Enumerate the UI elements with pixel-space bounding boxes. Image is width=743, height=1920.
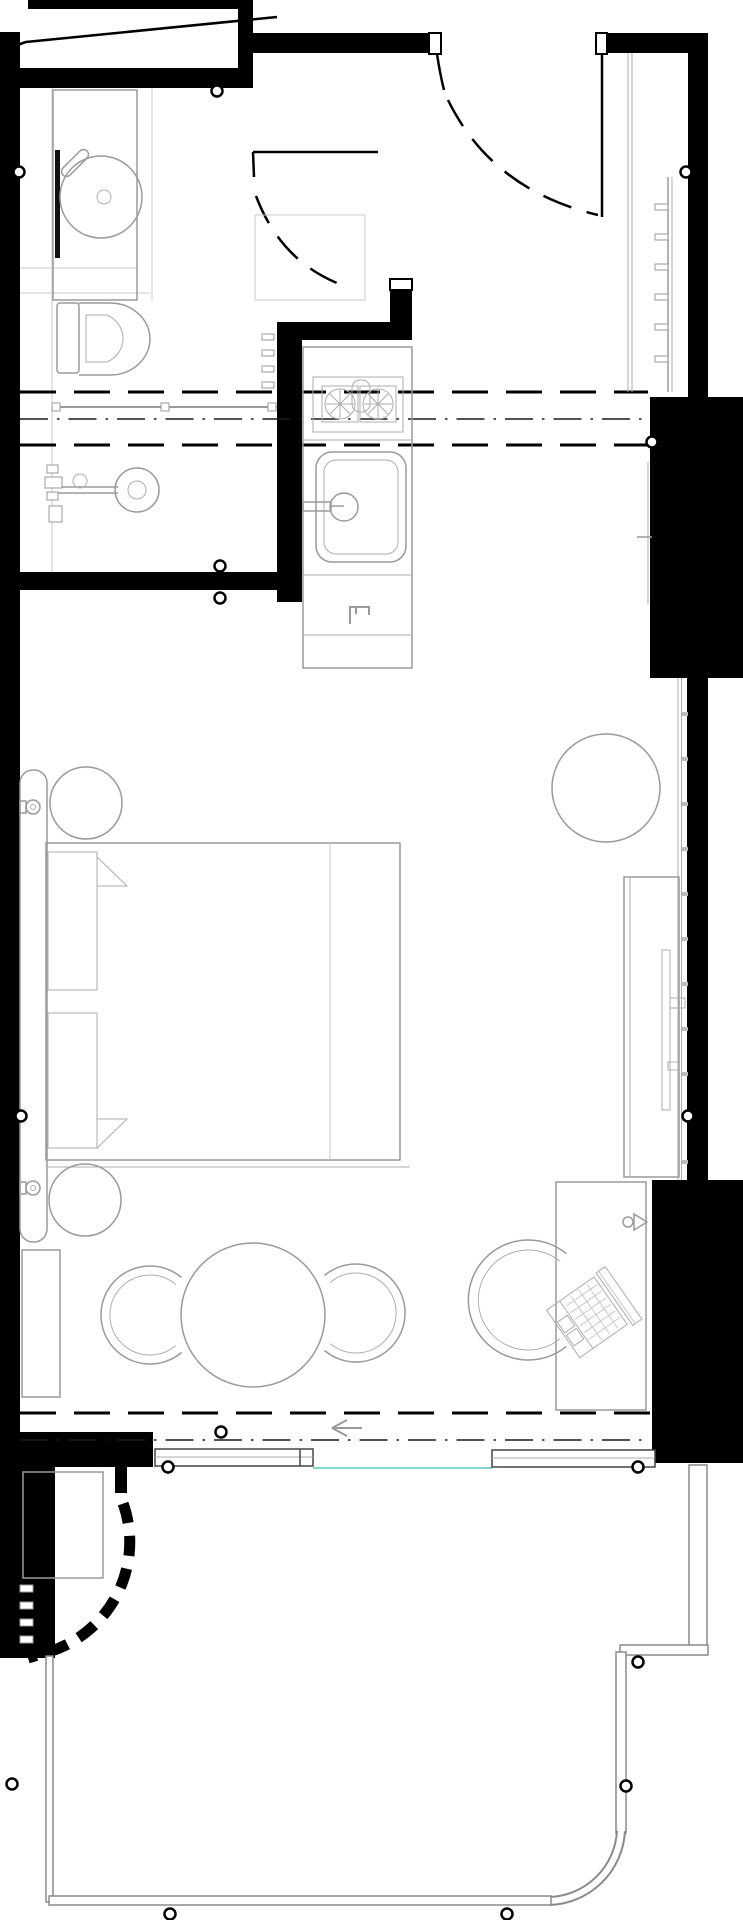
balcony [20,1465,708,1905]
marker-circle [216,1427,227,1438]
marker-circle [683,1111,694,1122]
bathroom-door-stub [253,152,254,177]
kitchen-sink-inner [324,460,398,554]
wall-kitchen-stub [390,288,412,322]
appliance-symbol [350,607,369,624]
railing-step [620,1645,708,1655]
tub-chair-right [325,1264,406,1362]
hanger [655,324,668,330]
marker-circle [215,561,226,572]
sink-faucet [303,502,331,511]
marker-circle [647,437,658,448]
hanger [655,356,668,362]
desk [556,1182,646,1410]
shower-knob [73,474,87,488]
door-frame-left [429,33,441,54]
wall-entry-band-right [607,33,708,53]
pillow [48,852,97,990]
drain-bracket [20,1619,33,1626]
lounge-armchair [552,734,660,842]
hanger [655,264,668,270]
television [662,950,670,1110]
wall-entry-band-left [253,33,429,53]
railing-left [46,1656,53,1902]
wall-balcony-left [0,1467,55,1658]
wall-top-strip [28,0,238,9]
railing-right-lower [616,1652,626,1833]
curtain-glider [161,403,169,411]
floor-plan [0,0,743,1920]
railing-bottom [49,1896,551,1905]
shaft-slab-lower [652,1180,743,1463]
wall-bracket [262,366,274,372]
curtain-glider [52,403,60,411]
washbasin [60,156,142,238]
hanger [655,204,668,210]
marker-circle [7,1779,18,1790]
marker-circle [633,1657,644,1668]
toilet-bowl-inner [86,315,123,362]
wall-bracket [262,334,274,340]
wall-bath-top-band [18,68,238,88]
duvet-fold [97,1119,127,1148]
wall-right-closet [688,53,708,397]
hanger [655,234,668,240]
bathroom-door-swing-arc [256,196,342,285]
doors [13,17,602,300]
wall-top-bar [238,0,253,88]
wall-kitchen-bar [277,322,302,602]
marker-circle [163,1462,174,1473]
tub-chair-left [101,1266,182,1364]
marker-circle [633,1462,644,1473]
railing-curve-inner [549,1831,621,1901]
washbasin-drain [97,190,111,204]
drain-bracket [20,1602,33,1609]
wall-sconce [20,1181,40,1195]
wall-sconce [20,800,40,814]
wardrobe [628,53,672,392]
marker-circle [621,1781,632,1792]
marker-circle [502,1909,513,1920]
railing-right [689,1465,707,1652]
dining [22,1243,405,1397]
bedroom [20,734,685,1242]
marker-circle [215,593,226,604]
wall-bracket [262,350,274,356]
slide-direction-arrow [332,1420,362,1436]
wall-kitchen-top-band [295,322,412,340]
neighbor-door-leaf [13,17,277,57]
wall-bracket [262,382,274,388]
towel-bar [55,150,60,258]
pillow [48,1013,97,1148]
wall-left [0,32,20,1467]
shower-head [115,468,159,512]
headboard-panel [20,770,47,1242]
marker-circle [16,1111,27,1122]
marker-circle [165,1909,176,1920]
entry-door-swing-arc [448,100,598,215]
shower [45,465,159,522]
toilet-bowl [79,303,150,375]
shaft-slab-upper [650,397,743,678]
workspace [468,1182,647,1410]
bedside-table [49,1164,121,1236]
dining-table [181,1243,325,1387]
marker-circle [212,86,223,97]
wall-bath-bottom-band [15,572,278,590]
hanger [655,294,668,300]
sink-drain [330,493,358,521]
drain-bracket [20,1585,33,1592]
drain-bracket [20,1636,33,1643]
wall-south-chunk [20,1432,153,1467]
marker-circle [14,167,25,178]
tv-sideboard [624,877,679,1177]
duvet-fold [97,857,127,886]
basin-faucet [59,147,90,178]
desk-chair [468,1240,566,1360]
luggage-bench [22,1250,60,1397]
desk-lamp [623,1214,647,1230]
laptop [545,1267,642,1361]
door-frame-kitchen-stub [390,279,412,290]
marker-circle [681,167,692,178]
curtain-glider [268,403,276,411]
entry-doormat [255,215,365,300]
door-frame-right [596,33,607,54]
entry-door-hinge-curve [437,54,444,90]
wall-window-strip [687,678,708,1180]
bed [46,843,400,1160]
bedside-table [50,767,122,839]
toilet-tank [57,303,79,373]
